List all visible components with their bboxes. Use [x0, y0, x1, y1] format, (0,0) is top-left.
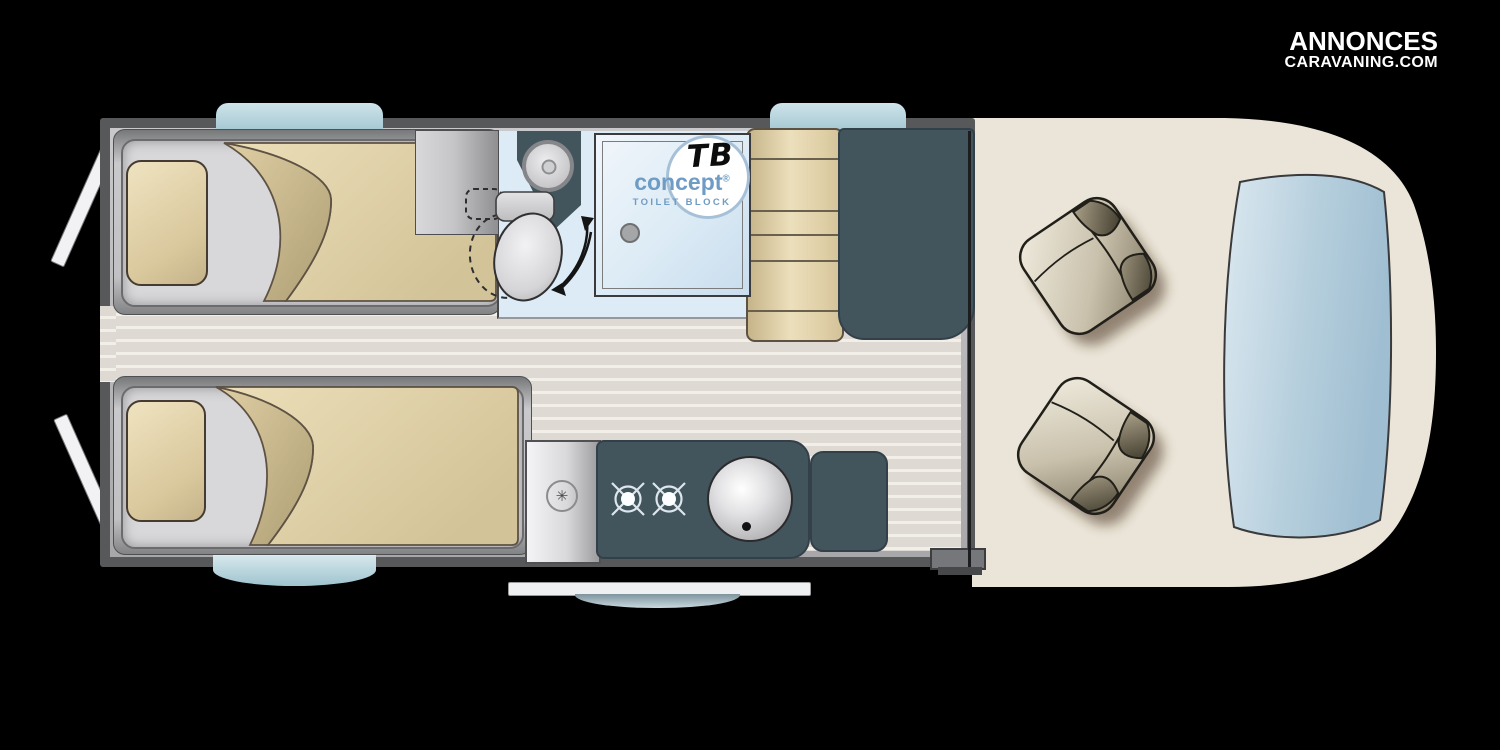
- driver-seat: [1012, 190, 1165, 343]
- single-bed-top-pillow: [126, 160, 208, 286]
- watermark-line1: ANNONCES: [1285, 28, 1438, 55]
- driver-seat-shadow: [1023, 203, 1176, 356]
- bench-cushion-divider: [748, 310, 842, 312]
- bench-cushion-divider: [748, 210, 842, 212]
- hob-burners: [602, 448, 712, 548]
- bench-cushion-divider: [748, 234, 842, 236]
- bed-foot-cabinet: [415, 130, 499, 235]
- bench-cushion-divider: [748, 260, 842, 262]
- shower-drain: [620, 223, 640, 243]
- rear-lower-window: [213, 553, 376, 586]
- kitchen-sink-drain: [742, 522, 751, 531]
- site-watermark: ANNONCES CARAVANING.COM: [1285, 28, 1438, 71]
- single-bed-bottom-pillow: [126, 400, 206, 522]
- entry-step-shadow: [938, 567, 982, 575]
- rear-door-opening: [100, 306, 116, 382]
- kitchen-cabinet: ✳: [525, 440, 601, 564]
- appliance-snowflake-icon: ✳: [546, 480, 578, 512]
- bench-cushion-divider: [748, 158, 842, 160]
- sliding-door-window: [575, 594, 740, 608]
- passenger-seat-shadow: [1021, 383, 1174, 536]
- cab-body: [972, 118, 1436, 587]
- floorplan-stage: TB concept® TOILET BLOCK: [0, 0, 1500, 750]
- registered-mark: ®: [722, 173, 729, 184]
- dinette-table: [838, 128, 975, 340]
- windshield: [1224, 175, 1391, 538]
- toilet-block-brand-text: concept: [634, 169, 722, 195]
- gas-burner-cap: [662, 492, 676, 506]
- kitchen-side-unit: [810, 451, 888, 552]
- gas-burner-cap: [621, 492, 635, 506]
- toilet-block-brand: concept®: [620, 169, 744, 196]
- dinette-bench: [746, 128, 844, 342]
- toilet-block-subtitle: TOILET BLOCK: [620, 197, 744, 208]
- watermark-line2: CARAVANING.COM: [1285, 55, 1438, 71]
- passenger-seat: [1010, 370, 1163, 523]
- cab-partition-line: [968, 131, 971, 567]
